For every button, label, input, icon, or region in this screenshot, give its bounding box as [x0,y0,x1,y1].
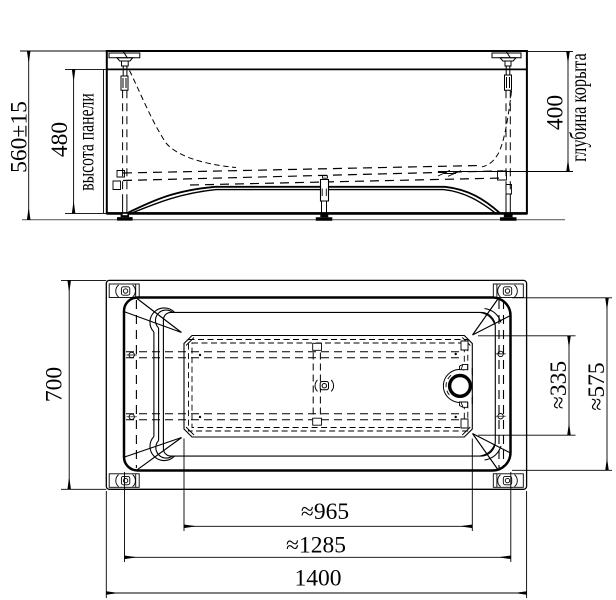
svg-text:≈1285: ≈1285 [286,533,346,559]
svg-text:560±15: 560±15 [6,101,32,173]
svg-text:высота панели: высота панели [73,93,99,191]
svg-text:1400: 1400 [295,566,342,592]
svg-text:≈335: ≈335 [546,361,572,409]
svg-text:глубина корыта: глубина корыта [566,53,592,161]
svg-text:700: 700 [42,367,68,402]
svg-text:400: 400 [543,95,569,130]
svg-text:≈575: ≈575 [584,362,610,410]
svg-text:480: 480 [47,122,73,157]
svg-text:≈965: ≈965 [301,499,349,525]
